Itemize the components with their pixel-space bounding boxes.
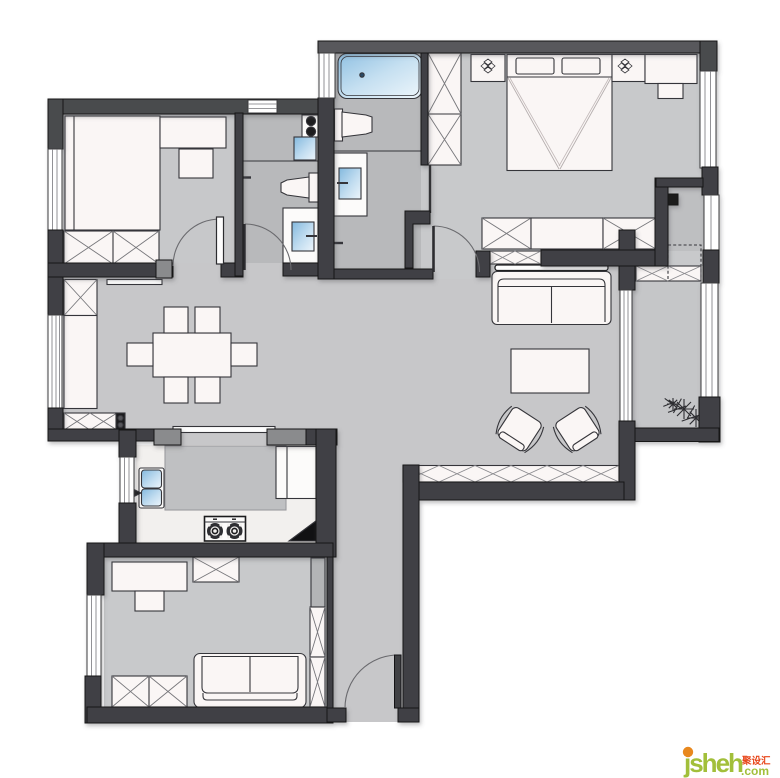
svg-text:.com: .com (741, 764, 769, 778)
